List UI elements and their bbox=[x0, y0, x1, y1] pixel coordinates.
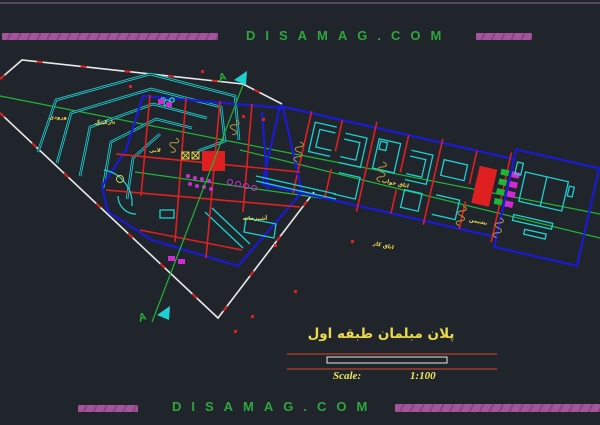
room-label: لابی bbox=[149, 148, 161, 154]
section-marker-bottom: A bbox=[135, 311, 148, 326]
room-label: پارکینگ bbox=[94, 117, 115, 126]
footer-decor-bar-right bbox=[395, 404, 600, 412]
guide-lines bbox=[0, 96, 600, 238]
footer-decor-bar-left bbox=[78, 405, 138, 412]
left-block bbox=[102, 95, 336, 266]
room-label: اتاق کار bbox=[371, 240, 394, 252]
section-arrow-bottom bbox=[157, 306, 170, 320]
cad-sheet: DISAMAG.COM bbox=[0, 0, 600, 425]
stair-core bbox=[471, 164, 520, 212]
scale-value: 1:100 bbox=[410, 370, 436, 382]
scale-label: Scale: bbox=[333, 370, 361, 382]
floor-plan-canvas: A A پارکینگ ورودی لابی آشپزخانه اتاق خوا… bbox=[0, 0, 600, 425]
room-label: ورودی bbox=[49, 115, 67, 121]
footer-site-text: DISAMAG.COM bbox=[172, 399, 377, 414]
drawing-title: پلان مبلمان طبقه اول bbox=[300, 326, 462, 342]
hatch-box bbox=[182, 152, 199, 159]
room-label: نشیمن bbox=[469, 217, 488, 227]
title-block bbox=[287, 354, 497, 369]
room-label: آشپزخانه bbox=[243, 214, 268, 222]
scale-bar bbox=[327, 357, 447, 363]
